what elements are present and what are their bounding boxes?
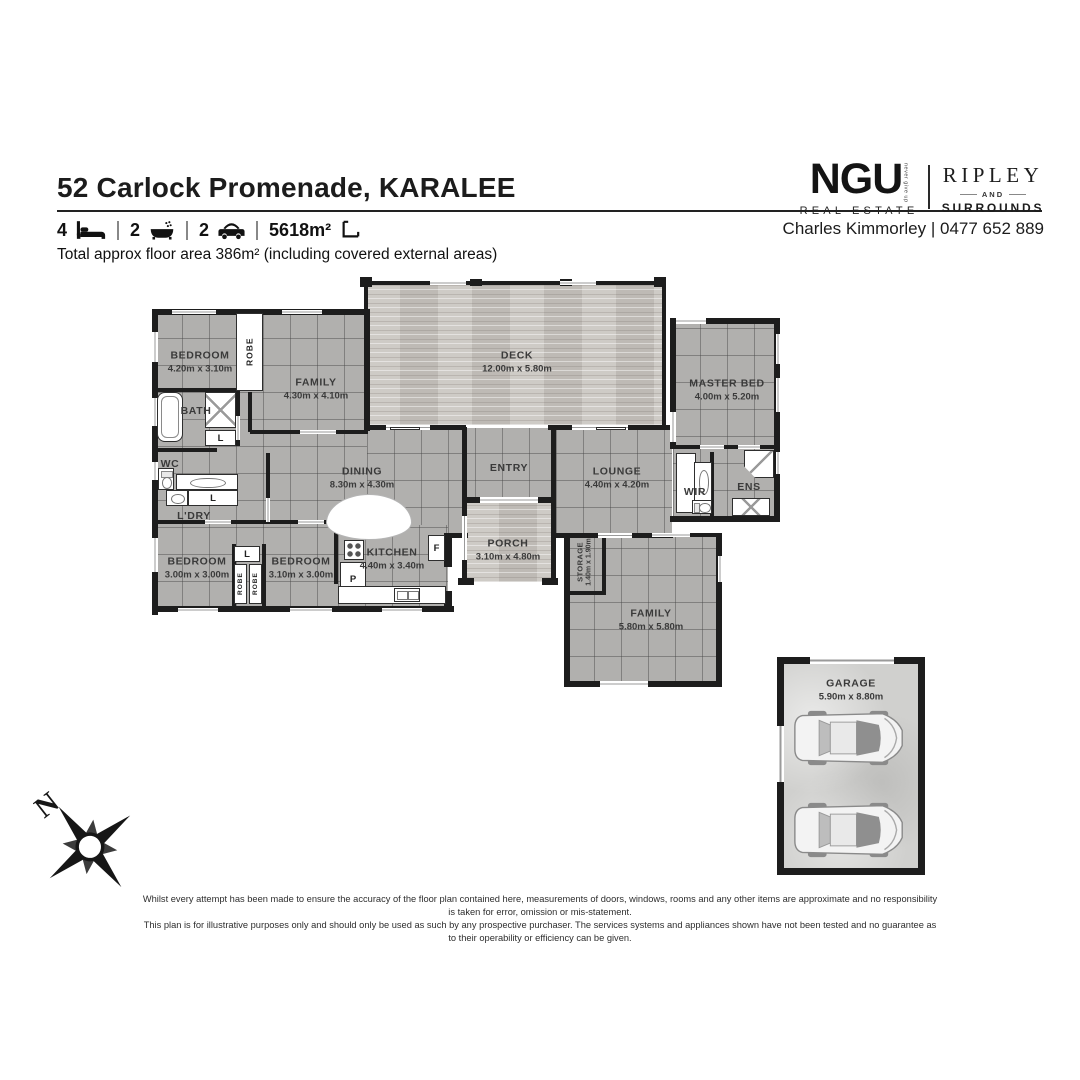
compass-north-label: N [33, 786, 65, 824]
room-name: WC [161, 458, 180, 470]
fixture-kitchen-sink [394, 588, 420, 602]
window-door-opening [560, 281, 596, 285]
room-label-kitchen: KITCHEN4.40m x 3.40m [360, 547, 424, 572]
room-label-bedroom3: BEDROOM3.10m x 3.00m [269, 556, 333, 581]
fixture-label: ROBE [237, 314, 262, 390]
window-door-opening [300, 430, 336, 434]
wall [462, 427, 467, 501]
room-dimensions: 3.10m x 4.80m [476, 552, 540, 563]
disclaimer-line-2: This plan is for illustrative purposes o… [140, 919, 940, 945]
window-door-opening [290, 608, 332, 612]
fixture-label: L [206, 431, 235, 445]
garage-car-2 [790, 802, 908, 858]
window-door-opening [266, 498, 270, 522]
wall [564, 591, 606, 595]
window-door-opening [718, 556, 722, 582]
room-dimensions: 12.00m x 5.80m [482, 364, 552, 375]
fixture-fridge: F [428, 535, 445, 561]
fixture-linen-bath: L [205, 430, 236, 446]
room-name: BATH [181, 405, 212, 417]
wall [670, 445, 780, 449]
room-name: L'DRY [177, 510, 211, 522]
wall [654, 277, 666, 287]
room-dimensions: 5.90m x 8.80m [819, 692, 883, 703]
room-name: ENTRY [490, 462, 528, 474]
window-door-opening [652, 533, 690, 537]
fixture-toilet-wc [158, 468, 174, 490]
fixture-robe-bed2: ROBE [234, 564, 247, 604]
window-door-opening [152, 332, 158, 362]
window-door-opening [777, 726, 784, 782]
room-name: FAMILY [284, 377, 348, 389]
room-name: WIR [684, 486, 706, 498]
room-label-storage: STORAGE1.40m x 1.90m [576, 538, 593, 585]
wall [262, 544, 266, 606]
disclaimer: Whilst every attempt has been made to en… [140, 893, 940, 945]
window-door-opening [178, 608, 218, 612]
wall [360, 277, 372, 287]
wall [777, 868, 925, 875]
car-icon [790, 802, 908, 858]
room-dimensions: 3.00m x 3.00m [165, 570, 229, 581]
room-label-lounge: LOUNGE4.40m x 4.20m [585, 466, 649, 491]
fixture-label: L [235, 547, 259, 561]
room-dimensions: 3.10m x 3.00m [269, 570, 333, 581]
fixture-linen-hall: L [234, 546, 260, 562]
fixture-label: L [189, 491, 237, 505]
compass-rose: N [33, 786, 141, 894]
fixture-linen-ldry: L [188, 490, 238, 506]
room-name: STORAGE [576, 538, 585, 585]
fixture-label: F [429, 536, 444, 560]
fixture-label: ROBE [250, 565, 261, 603]
window-door-opening [776, 378, 780, 412]
room-dimensions: 5.80m x 5.80m [619, 622, 683, 633]
wall [564, 533, 570, 687]
wall [364, 309, 370, 431]
fixture-slider-deck-west [390, 427, 420, 430]
room-label-garage: GARAGE5.90m x 8.80m [819, 678, 883, 703]
wall [918, 657, 925, 875]
window-door-opening [700, 445, 724, 449]
room-label-dining: DINING8.30m x 4.30m [330, 466, 394, 491]
wall [602, 533, 606, 595]
window-door-opening [430, 281, 466, 285]
fixture-toilet-ens [692, 500, 712, 514]
window-door-opening [738, 445, 760, 449]
room-dimensions: 8.30m x 4.30m [330, 480, 394, 491]
room-name: KITCHEN [360, 547, 424, 559]
room-name: MASTER BED [689, 378, 764, 390]
room-label-bedroom2: BEDROOM3.00m x 3.00m [165, 556, 229, 581]
fixture-bathtub [157, 392, 183, 442]
wall [551, 503, 556, 585]
wall [364, 281, 666, 285]
room-label-family2: FAMILY5.80m x 5.80m [619, 608, 683, 633]
room-label-family1: FAMILY4.30m x 4.10m [284, 377, 348, 402]
garage-car-1 [790, 710, 908, 766]
window-door-opening [676, 318, 706, 324]
wall [458, 578, 474, 585]
wall [662, 281, 666, 427]
window-door-opening [236, 416, 240, 440]
window-door-opening [382, 608, 422, 612]
fixture-kitchen-bench [338, 586, 446, 604]
window-door-opening [152, 538, 158, 572]
window-door-opening [480, 497, 538, 503]
room-label-ens: ENS [737, 481, 760, 493]
room-dimensions: 4.30m x 4.10m [284, 391, 348, 402]
wall [444, 533, 452, 567]
room-dimensions: 1.40m x 1.90m [586, 538, 593, 585]
room-name: DECK [482, 350, 552, 362]
room-name: DINING [330, 466, 394, 478]
floorplan-page: 52 Carlock Promenade, KARALEE 4 2 2 5618… [0, 0, 1080, 1080]
fixture-slider-deck-east [596, 427, 626, 430]
room-dimensions: 4.40m x 4.20m [585, 480, 649, 491]
room-label-bath: BATH [181, 405, 212, 417]
fixture-laundry-tub [166, 490, 188, 506]
wall [670, 516, 780, 522]
window-door-opening [810, 657, 894, 664]
room-name: GARAGE [819, 678, 883, 690]
wall [542, 578, 558, 585]
room-name: LOUNGE [585, 466, 649, 478]
car-icon [790, 710, 908, 766]
window-door-opening [598, 533, 632, 538]
window-door-opening [600, 681, 648, 687]
window-door-opening [298, 520, 324, 524]
room-label-wir: WIR [684, 486, 706, 498]
disclaimer-line-1: Whilst every attempt has been made to en… [140, 893, 940, 919]
room-name: BEDROOM [168, 350, 232, 362]
wall [470, 279, 482, 286]
wall [777, 657, 787, 664]
window-door-opening [776, 334, 780, 364]
room-label-master-bed: MASTER BED4.00m x 5.20m [689, 378, 764, 403]
room-dimensions: 4.40m x 3.40m [360, 561, 424, 572]
room-name: BEDROOM [165, 556, 229, 568]
window-door-opening [776, 452, 780, 474]
room-name: PORCH [476, 538, 540, 550]
room-label-bedroom1: BEDROOM4.20m x 3.10m [168, 350, 232, 375]
window-door-opening [670, 412, 676, 442]
wall [155, 448, 217, 452]
room-label-entry: ENTRY [490, 462, 528, 474]
wall [551, 427, 556, 501]
room-label-deck: DECK12.00m x 5.80m [482, 350, 552, 375]
room-label-porch: PORCH3.10m x 4.80m [476, 538, 540, 563]
fixture-vanity-wc [176, 474, 238, 490]
fixture-label: ROBE [235, 565, 246, 603]
fixture-ens-shower [732, 498, 770, 516]
window-door-opening [172, 310, 216, 314]
room-dimensions: 4.20m x 3.10m [168, 364, 232, 375]
window-door-opening [282, 310, 322, 314]
fixture-robe-top: ROBE [236, 313, 263, 391]
room-name: ENS [737, 481, 760, 493]
room-name: BEDROOM [269, 556, 333, 568]
fixture-robe-bed3: ROBE [249, 564, 262, 604]
room-label-ldry: L'DRY [177, 510, 211, 522]
wall [248, 392, 252, 432]
room-label-wc: WC [161, 458, 180, 470]
room-dimensions: 4.00m x 5.20m [689, 392, 764, 403]
room-name: FAMILY [619, 608, 683, 620]
window-door-opening [462, 516, 467, 560]
